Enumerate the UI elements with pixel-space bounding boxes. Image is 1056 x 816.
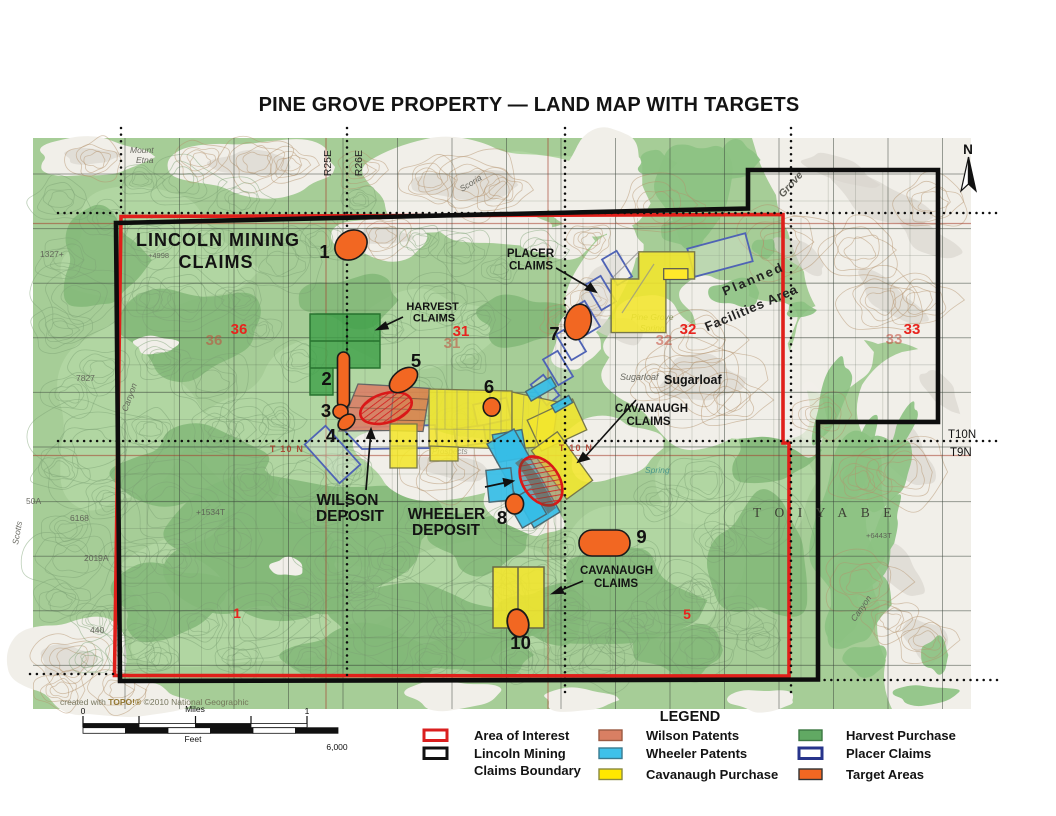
svg-text:2019A: 2019A — [84, 553, 109, 563]
svg-text:created with TOPO!® ©2010 Nati: created with TOPO!® ©2010 National Geogr… — [60, 697, 249, 707]
svg-text:6168: 6168 — [70, 513, 89, 523]
svg-text:T 10 N: T 10 N — [559, 443, 593, 453]
svg-text:1327+: 1327+ — [40, 249, 64, 259]
svg-text:Cavanaugh Purchase: Cavanaugh Purchase — [646, 767, 778, 782]
svg-text:33: 33 — [904, 321, 921, 338]
svg-text:Lincoln Mining: Lincoln Mining — [474, 746, 566, 761]
svg-text:Mount: Mount — [130, 145, 154, 155]
svg-text:Feet: Feet — [184, 734, 202, 744]
svg-text:CLAIMS: CLAIMS — [509, 261, 553, 273]
svg-text:LEGEND: LEGEND — [660, 709, 720, 725]
svg-text:3: 3 — [321, 400, 331, 421]
svg-text:440: 440 — [90, 625, 104, 635]
svg-text:+1534T: +1534T — [196, 507, 225, 517]
svg-text:2: 2 — [321, 368, 331, 389]
svg-text:WILSON: WILSON — [317, 492, 379, 509]
svg-text:0: 0 — [81, 706, 86, 716]
svg-text:+4998: +4998 — [148, 251, 169, 260]
svg-text:1: 1 — [305, 706, 310, 716]
svg-text:36: 36 — [231, 321, 248, 338]
svg-text:CLAIMS: CLAIMS — [413, 313, 455, 325]
svg-text:Target Areas: Target Areas — [846, 767, 924, 782]
svg-text:CLAIMS: CLAIMS — [594, 578, 638, 590]
svg-text:HARVEST: HARVEST — [406, 301, 459, 313]
svg-text:32: 32 — [656, 332, 673, 349]
svg-text:32: 32 — [680, 321, 697, 338]
svg-text:T10N: T10N — [948, 429, 976, 441]
svg-text:CLAIMS: CLAIMS — [626, 416, 670, 428]
svg-text:Placer Claims: Placer Claims — [846, 746, 931, 761]
svg-text:Wheeler Patents: Wheeler Patents — [646, 746, 747, 761]
svg-text:PINE GROVE PROPERTY — LAND MAP: PINE GROVE PROPERTY — LAND MAP WITH TARG… — [259, 94, 800, 116]
svg-text:Scotts: Scotts — [10, 520, 24, 546]
svg-text:PLACER: PLACER — [507, 248, 555, 260]
svg-text:Spring: Spring — [645, 465, 670, 475]
svg-text:WHEELER: WHEELER — [408, 506, 486, 523]
svg-text:CAVANAUGH: CAVANAUGH — [580, 565, 653, 577]
svg-text:50A: 50A — [26, 496, 41, 506]
svg-text:8: 8 — [497, 507, 507, 528]
svg-text:9: 9 — [636, 526, 646, 547]
svg-text:Area of Interest: Area of Interest — [474, 728, 570, 743]
svg-text:5: 5 — [683, 606, 691, 622]
svg-text:N: N — [963, 142, 973, 157]
svg-text:1: 1 — [233, 605, 241, 621]
svg-text:10: 10 — [510, 632, 531, 653]
svg-text:7: 7 — [549, 323, 559, 344]
svg-text:7827: 7827 — [76, 373, 95, 383]
svg-text:Etna: Etna — [136, 155, 154, 165]
svg-text:1: 1 — [319, 241, 329, 262]
svg-text:4: 4 — [326, 425, 337, 446]
svg-text:Harvest Purchase: Harvest Purchase — [846, 728, 956, 743]
svg-text:Claims Boundary: Claims Boundary — [474, 763, 582, 778]
svg-text:TOIYABE: TOIYABE — [753, 505, 905, 520]
svg-text:CAVANAUGH: CAVANAUGH — [615, 403, 688, 415]
svg-text:T9N: T9N — [950, 447, 972, 459]
svg-text:LINCOLN MINING: LINCOLN MINING — [136, 230, 300, 250]
svg-text:5: 5 — [411, 350, 421, 371]
svg-text:DEPOSIT: DEPOSIT — [316, 508, 385, 525]
svg-text:36: 36 — [206, 332, 223, 349]
svg-text:Miles: Miles — [185, 704, 205, 714]
svg-text:6: 6 — [484, 376, 494, 397]
svg-text:Sugarloaf: Sugarloaf — [620, 372, 660, 382]
svg-text:R26E: R26E — [353, 150, 365, 176]
svg-text:R25E: R25E — [322, 150, 334, 176]
svg-text:33: 33 — [886, 331, 903, 348]
svg-text:T 10 N: T 10 N — [270, 444, 304, 454]
svg-text:6,000: 6,000 — [326, 742, 348, 752]
svg-text:Sugarloaf: Sugarloaf — [664, 373, 722, 387]
svg-text:+6443T: +6443T — [866, 531, 892, 540]
svg-text:CLAIMS: CLAIMS — [179, 252, 254, 272]
svg-text:Wilson Patents: Wilson Patents — [646, 728, 739, 743]
svg-text:DEPOSIT: DEPOSIT — [412, 522, 481, 539]
svg-text:31: 31 — [444, 335, 461, 352]
